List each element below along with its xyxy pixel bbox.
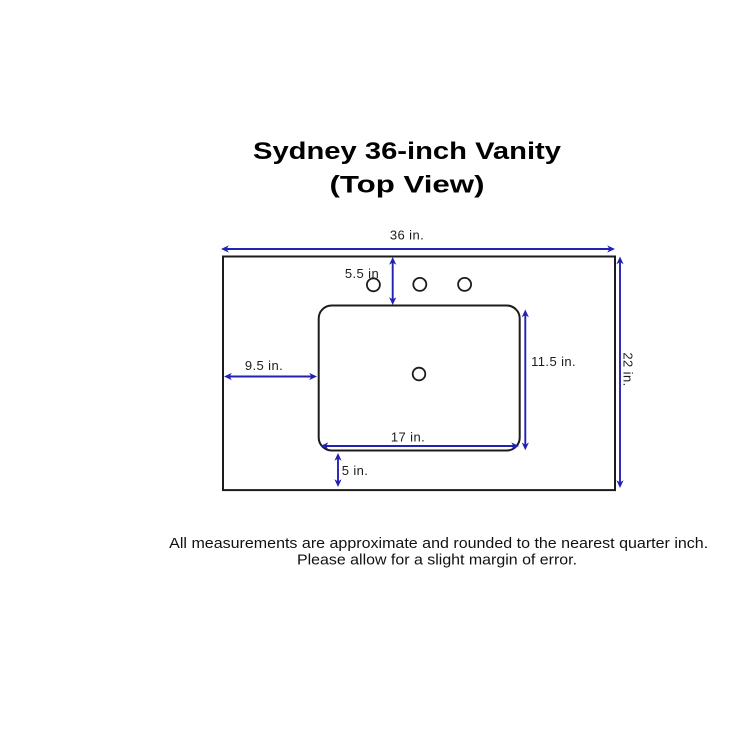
- svg-text:36 in.: 36 in.: [390, 228, 424, 243]
- svg-text:5 in.: 5 in.: [342, 463, 369, 478]
- svg-text:9.5 in.: 9.5 in.: [245, 358, 283, 373]
- svg-text:22 in.: 22 in.: [621, 352, 636, 386]
- svg-text:11.5 in.: 11.5 in.: [531, 354, 576, 369]
- svg-text:All measurements are approxima: All measurements are approximate and rou…: [169, 535, 708, 552]
- svg-text:(Top View): (Top View): [330, 172, 485, 199]
- svg-text:Sydney 36-inch Vanity: Sydney 36-inch Vanity: [253, 138, 562, 165]
- svg-text:17 in.: 17 in.: [391, 430, 425, 445]
- svg-text:Please allow for a slight marg: Please allow for a slight margin of erro…: [297, 552, 577, 569]
